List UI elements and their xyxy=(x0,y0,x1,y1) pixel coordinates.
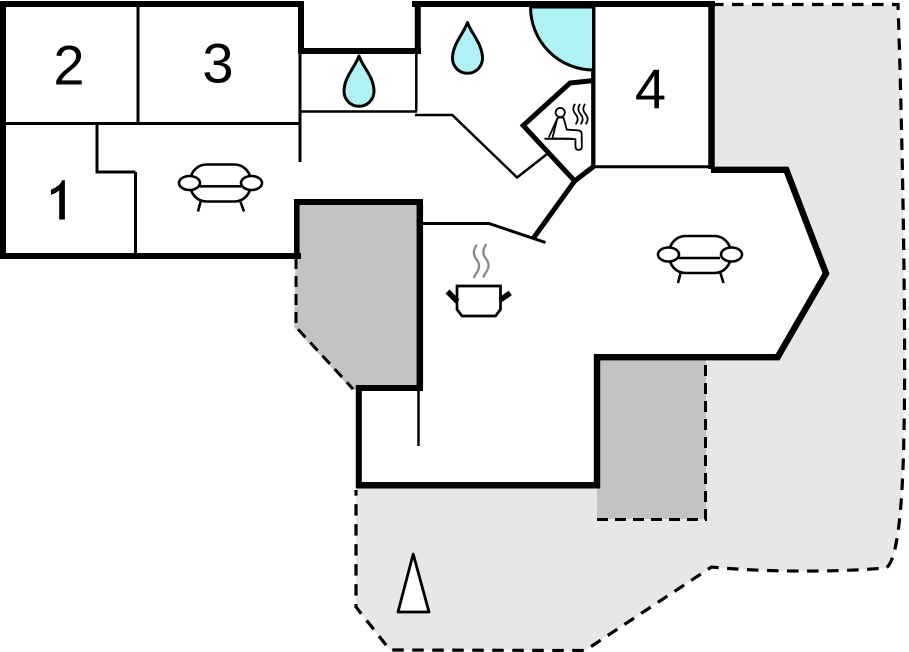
svg-text:2: 2 xyxy=(53,34,84,97)
svg-text:4: 4 xyxy=(635,57,666,120)
svg-text:3: 3 xyxy=(202,32,233,95)
